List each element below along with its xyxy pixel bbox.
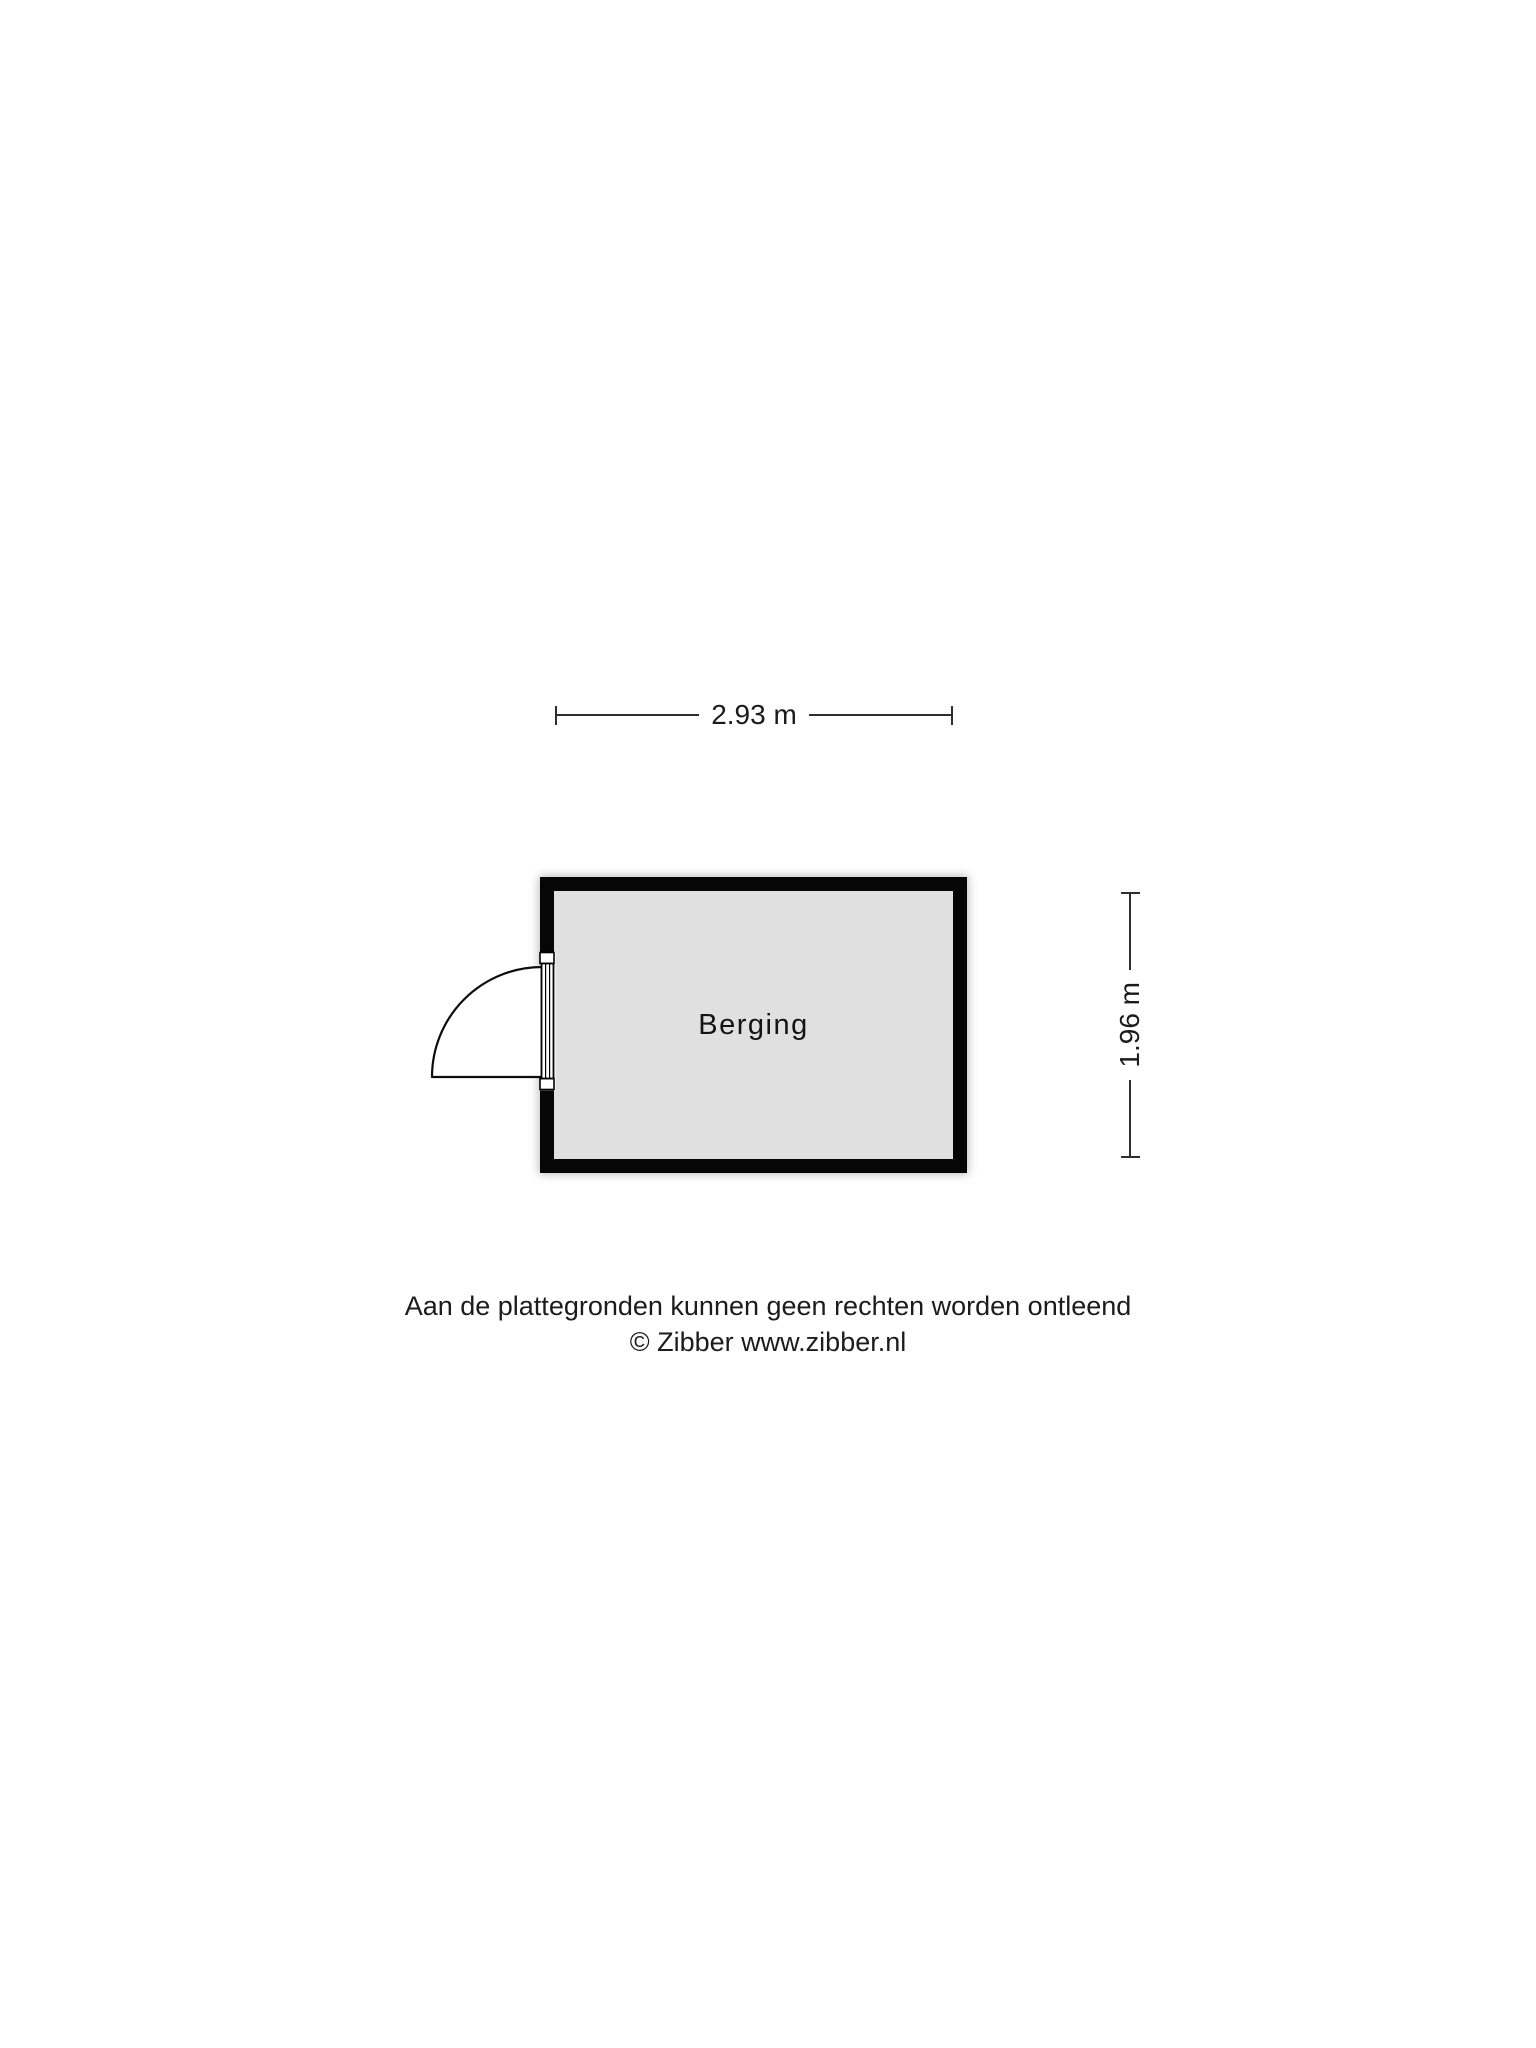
disclaimer: Aan de plattegronden kunnen geen rechten… [0,1288,1536,1360]
floorplan-canvas: 2.93 m Berging 1.96 m Aan de plattegrond… [0,0,1536,2048]
dimension-line-segment [1129,894,1131,970]
dimension-line-segment [809,714,951,716]
disclaimer-line-1: Aan de plattegronden kunnen geen rechten… [0,1288,1536,1324]
door-jamb-bottom [540,1079,554,1090]
width-dimension: 2.93 m [555,697,953,733]
dimension-tick-bottom [1121,1156,1140,1158]
door-jamb-top [540,953,554,964]
door-swing-icon [415,935,570,1105]
disclaimer-line-2: © Zibber www.zibber.nl [0,1324,1536,1360]
room-label: Berging [698,1009,808,1042]
door-swing-arc [432,967,542,1077]
room-berging: Berging [540,877,967,1173]
dimension-line-segment [557,714,699,716]
dimension-tick-right [951,706,953,725]
height-dimension-label: 1.96 m [1112,970,1148,1080]
door-panel [542,964,554,1079]
width-dimension-label: 2.93 m [699,697,809,733]
dimension-line-segment [1129,1080,1131,1156]
height-dimension: 1.96 m [1112,892,1148,1158]
